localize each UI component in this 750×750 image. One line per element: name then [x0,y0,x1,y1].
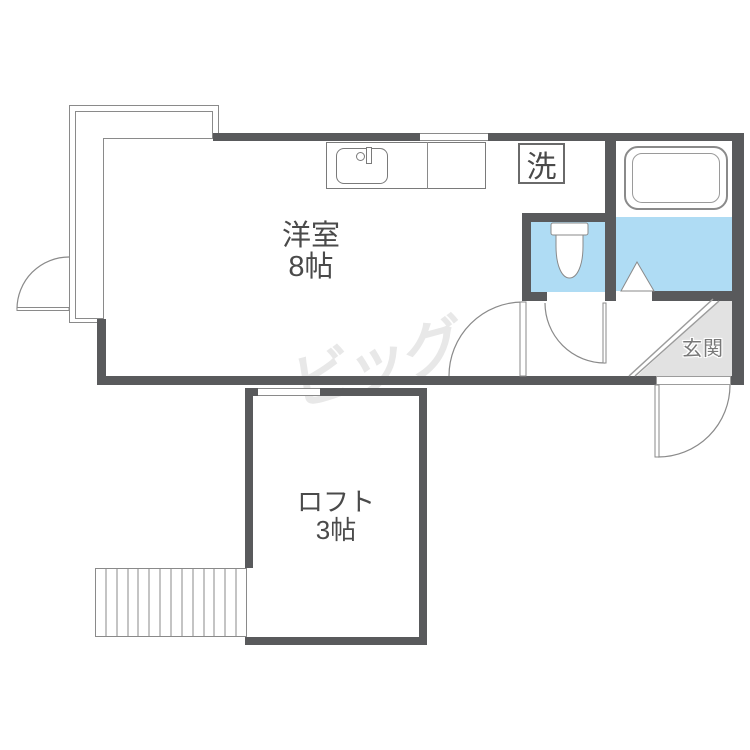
loft-wall-right [419,388,427,645]
laundry-label: 洗 [527,142,557,186]
loft-size: 3帖 [276,516,396,544]
loft-window [258,388,320,396]
wall-toilet-left [522,222,531,301]
window-line-left [103,138,104,319]
wall-toilet-top [522,213,605,222]
wall-right [732,133,744,385]
balcony-door-leaf [17,308,69,311]
balcony-outline [75,111,213,112]
balcony-outline [69,105,219,106]
loft-wall-bottom [245,637,427,645]
entrance-door-leaf [655,385,659,457]
stairs-icon [95,568,247,637]
wall-bottom [97,376,744,385]
bathroom-floor [616,217,732,291]
balcony-outline [69,105,70,323]
balcony-outline [218,105,219,133]
loft-name: ロフト [276,488,396,516]
genkan-text: 玄関 [682,338,724,360]
kitchen-window [420,133,488,141]
wall-left [97,319,106,385]
laundry-box: 洗 [518,143,565,184]
balcony-door-arc [17,257,69,309]
entrance-threshold [656,376,731,385]
genkan-label: 玄関 [682,332,724,361]
entrance-door-arc [658,385,730,457]
loft-wall-left [245,388,253,568]
wall-bathroom-left [605,133,616,301]
wall-bathroom-bottom [652,291,732,301]
main-room-label: 洋室 8帖 [251,221,371,284]
main-room-size: 8帖 [251,252,371,283]
balcony-outline [75,111,76,319]
room-door-leaf [520,302,526,376]
watermark-label: ビッグ [288,308,467,420]
toilet-door-arc [545,303,605,363]
kitchen-faucet-stem-icon [366,147,372,164]
watermark: ビッグ [285,293,467,424]
kitchen-faucet-icon [356,152,365,161]
bathtub-inner-rim [632,153,720,203]
toilet-floor [531,222,605,292]
main-room-name: 洋室 [251,221,371,252]
floorplan-canvas: ビッグ 洗 [0,0,750,750]
toilet-door-leaf [603,303,606,363]
kitchen-counter-divider [427,142,428,189]
loft-label: ロフト 3帖 [276,488,396,544]
window-line-top [103,138,213,139]
wall-toilet-bottom [531,292,547,301]
